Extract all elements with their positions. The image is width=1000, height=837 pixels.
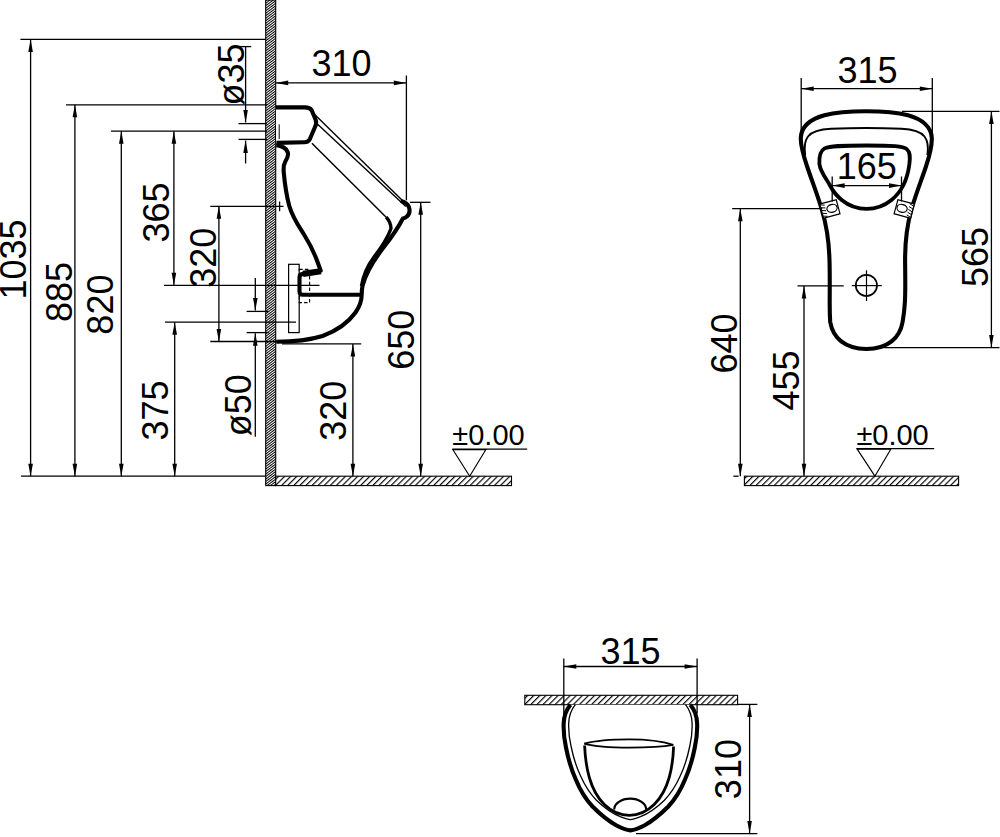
svg-text:565: 565 bbox=[955, 227, 996, 287]
svg-text:315: 315 bbox=[600, 631, 660, 672]
svg-text:820: 820 bbox=[80, 275, 121, 335]
svg-text:310: 310 bbox=[311, 43, 371, 84]
svg-text:1035: 1035 bbox=[0, 219, 34, 299]
svg-text:650: 650 bbox=[381, 310, 422, 370]
svg-text:315: 315 bbox=[838, 50, 898, 91]
svg-text:±0.00: ±0.00 bbox=[452, 419, 524, 451]
svg-text:310: 310 bbox=[708, 739, 749, 799]
svg-text:320: 320 bbox=[313, 381, 354, 441]
svg-text:640: 640 bbox=[704, 313, 745, 373]
svg-text:375: 375 bbox=[135, 380, 176, 440]
svg-text:165: 165 bbox=[837, 146, 897, 187]
svg-text:365: 365 bbox=[136, 182, 177, 242]
svg-text:ø50: ø50 bbox=[218, 374, 259, 436]
svg-text:320: 320 bbox=[183, 228, 224, 288]
svg-text:±0.00: ±0.00 bbox=[856, 419, 928, 451]
svg-text:885: 885 bbox=[39, 262, 80, 322]
svg-text:ø35: ø35 bbox=[211, 43, 252, 105]
svg-text:455: 455 bbox=[766, 350, 807, 410]
